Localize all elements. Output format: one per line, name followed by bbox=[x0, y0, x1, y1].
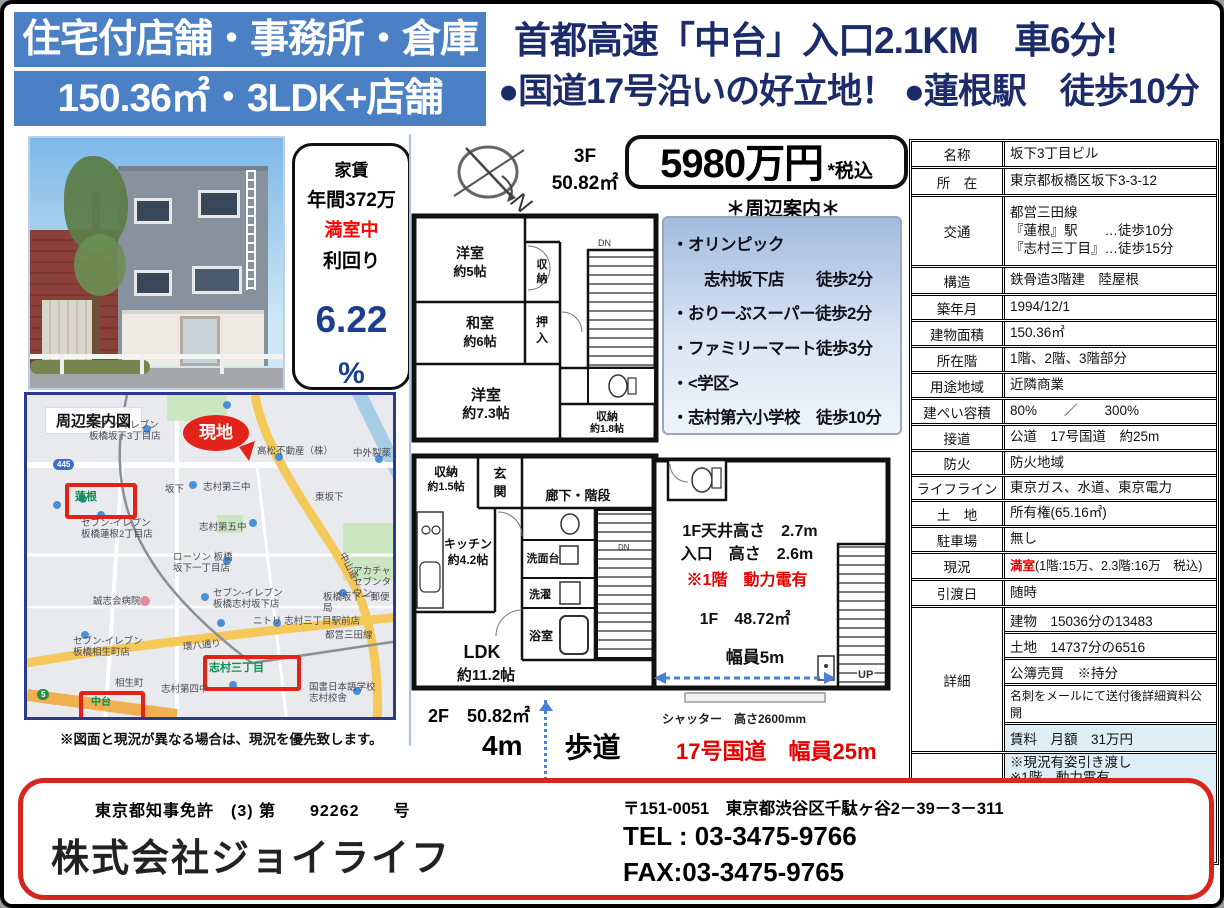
table-row: ライフライン東京ガス、水道、東京電力 bbox=[912, 477, 1216, 502]
window-2f-right bbox=[192, 266, 242, 294]
toilet-icon bbox=[609, 375, 627, 397]
map-label: 高松不動産（株） bbox=[257, 447, 333, 458]
flyer-page: 住宅付店舗・事務所・倉庫 150.36㎡・3LDK+店舗 首都高速「中台」入口2… bbox=[0, 0, 1224, 908]
kitchen-counter-icon bbox=[417, 512, 443, 608]
svg-text:DN: DN bbox=[618, 543, 630, 552]
table-row: 築年月1994/12/1 bbox=[912, 296, 1216, 322]
svg-text:約4.2帖: 約4.2帖 bbox=[448, 552, 489, 567]
svg-text:収納: 収納 bbox=[596, 409, 618, 423]
status-detail: (1階:15万、2.3階:16万 税込) bbox=[1035, 558, 1202, 575]
yield-value: 6.22 bbox=[295, 299, 408, 341]
price-amount: 5980万円 bbox=[660, 142, 823, 186]
hospital-icon bbox=[140, 596, 150, 606]
map-label: セブン-イレブン 板橋坂下3丁目店 bbox=[89, 421, 161, 443]
rent-annual: 年間372万 bbox=[295, 185, 408, 212]
property-table: 名称坂下3丁目ビル 所 在東京都板橋区坂下3-3-12 交通都営三田線 『蓮根』… bbox=[909, 139, 1219, 865]
table-row: 接道公道 17号国道 約25m bbox=[912, 426, 1216, 452]
table-row: 引渡日随時 bbox=[912, 581, 1216, 608]
svg-text:約5帖: 約5帖 bbox=[453, 264, 486, 279]
svg-text:収納: 収納 bbox=[434, 464, 458, 479]
svg-text:洗面台: 洗面台 bbox=[527, 551, 560, 565]
table-row: 構造鉄骨造3階建 陸屋根 bbox=[912, 268, 1216, 296]
svg-text:納: 納 bbox=[537, 271, 548, 285]
floorplan-2f: DN 収納 約1.5帖 玄 関 廊下・階段 キッチン 約4.2帖 洗面台 洗濯 … bbox=[410, 450, 660, 700]
sidewalk-note: 4m 歩道 bbox=[482, 726, 620, 766]
guardrail-post bbox=[220, 354, 224, 374]
svg-text:約1.8帖: 約1.8帖 bbox=[590, 422, 624, 435]
site-marker-label: 現地 bbox=[199, 423, 233, 442]
floor3-title: 3F 50.82㎡ bbox=[540, 146, 630, 195]
company-name: 株式会社ジョイライフ bbox=[51, 827, 451, 882]
svg-text:押: 押 bbox=[536, 314, 548, 329]
shutter-note: シャッター 高さ2600mm bbox=[662, 710, 806, 727]
sidewalk-arrow-icon bbox=[544, 700, 547, 786]
svg-text:幅員5m: 幅員5m bbox=[726, 647, 785, 667]
svg-text:洗濯: 洗濯 bbox=[529, 587, 551, 601]
table-row: 駐車場無し bbox=[912, 528, 1216, 554]
window-2f-left bbox=[134, 270, 172, 296]
floor2-label: 2F 50.82㎡ bbox=[428, 702, 530, 728]
site-marker: 現地 bbox=[183, 415, 249, 451]
toilet-icon bbox=[561, 514, 579, 534]
bathtub-icon bbox=[560, 616, 588, 654]
svg-text:入: 入 bbox=[536, 331, 548, 345]
table-row-status: 現況 満室(1階:15万、2.3階:16万 税込) bbox=[912, 554, 1216, 581]
price-tax-note: *税込 bbox=[828, 161, 873, 182]
washbasin-icon bbox=[560, 546, 578, 564]
guardrail-post bbox=[140, 354, 144, 374]
map-label: 国書日本語学校 志村校舎 bbox=[309, 683, 376, 705]
svg-text:玄: 玄 bbox=[493, 466, 506, 481]
sidewalk-hodo: 歩道 bbox=[564, 726, 620, 766]
guardrail bbox=[30, 354, 285, 359]
shutter-icon bbox=[685, 693, 825, 702]
occupancy-status: 満室中 bbox=[295, 216, 408, 242]
nearby-item: ・<学区> bbox=[672, 367, 894, 402]
svg-text:約7.3帖: 約7.3帖 bbox=[462, 405, 509, 421]
property-photo bbox=[28, 136, 285, 390]
svg-text:DN: DN bbox=[598, 238, 611, 248]
map-label: アカチャ セブンタウン bbox=[353, 567, 393, 600]
sidewalk-arrow-up bbox=[539, 694, 553, 711]
map-label: 坂下 bbox=[165, 485, 184, 496]
company-box: 東京都知事免許 (3) 第 92262 号 株式会社ジョイライフ 〒151-00… bbox=[18, 778, 1214, 900]
nearby-item: ・おりーぶスーパー徒歩2分 bbox=[672, 297, 894, 332]
svg-text:キッチン: キッチン bbox=[444, 537, 492, 551]
stairs-icon bbox=[597, 510, 654, 658]
svg-text:浴室: 浴室 bbox=[529, 628, 553, 643]
floorplan-1f: 1F天井高さ 2.7m 入口 高さ 2.6m ※1階 動力電有 1F 48.72… bbox=[650, 456, 895, 706]
map-label-station: 志村三丁目 bbox=[209, 662, 264, 675]
table-row: 防火防火地域 bbox=[912, 452, 1216, 477]
headline-line2: ●国道17号沿いの好立地！ ●蓮根駅 徒歩10分 bbox=[498, 68, 1220, 115]
company-fax: FAX:03-3475-9765 bbox=[623, 857, 844, 888]
table-row: 用途地域近隣商業 bbox=[912, 374, 1216, 400]
guardrail-post bbox=[60, 354, 64, 374]
svg-text:和室: 和室 bbox=[466, 315, 494, 331]
nearby-item: ・志村第六小学校 徒歩10分 bbox=[672, 401, 894, 436]
nearby-item: ・オリンピック bbox=[672, 228, 894, 263]
table-row: 所 在東京都板橋区坂下3-3-12 bbox=[912, 169, 1216, 197]
license-number: 東京都知事免許 (3) 第 92262 号 bbox=[95, 797, 411, 821]
svg-text:廊下・階段: 廊下・階段 bbox=[545, 488, 610, 503]
rent-yield-box: 家賃 年間372万 満室中 利回り 6.22 % bbox=[292, 143, 411, 390]
table-row: 建物面積150.36㎡ bbox=[912, 322, 1216, 348]
map-label: 都営三田線 bbox=[325, 631, 373, 642]
svg-text:UP: UP bbox=[858, 669, 873, 681]
nearby-item: 志村坂下店 徒歩2分 bbox=[672, 263, 894, 298]
map-label: ローソン 板橋 坂下一丁目店 bbox=[173, 553, 233, 575]
map-label: 東坂下 bbox=[315, 493, 344, 504]
floorplan-3f: DN 洋室 約5帖 収 納 和室 約6帖 押 入 洋室 約7.3帖 収納 約1.… bbox=[410, 202, 660, 447]
road-note: 17号国道 幅員25m bbox=[676, 734, 877, 766]
svg-text:※1階 動力電有: ※1階 動力電有 bbox=[687, 570, 808, 589]
map-label: 志村第五中 bbox=[199, 523, 247, 534]
svg-text:LDK: LDK bbox=[464, 642, 501, 662]
yield-label: 利回り bbox=[295, 246, 408, 273]
map-label: 相生町 bbox=[115, 679, 144, 690]
table-row: 名称坂下3丁目ビル bbox=[912, 142, 1216, 169]
svg-text:収: 収 bbox=[537, 258, 549, 271]
svg-text:洋室: 洋室 bbox=[471, 386, 501, 404]
svg-text:関: 関 bbox=[493, 484, 506, 499]
table-row: 建ぺい容積80% ／ 300% bbox=[912, 400, 1216, 426]
floor3-area: 50.82㎡ bbox=[540, 168, 630, 195]
roof-ladder-icon bbox=[246, 170, 256, 290]
floor3-floor: 3F bbox=[540, 146, 630, 168]
property-type-banner: 住宅付店舗・事務所・倉庫 150.36㎡・3LDK+店舗 bbox=[14, 12, 486, 126]
svg-text:1F 48.72㎡: 1F 48.72㎡ bbox=[700, 609, 791, 628]
banner-line1: 住宅付店舗・事務所・倉庫 bbox=[14, 12, 486, 67]
map-disclaimer: ※図面と現況が異なる場合は、現況を優先致します。 bbox=[60, 728, 383, 748]
station-highlight-nakadai bbox=[79, 691, 145, 720]
stairs-icon bbox=[588, 250, 655, 368]
toilet-icon bbox=[692, 468, 712, 492]
map-label: ニトリ 志村三丁目駅前店 bbox=[253, 617, 360, 628]
map-label: 誠志会病院 bbox=[93, 597, 141, 608]
bushes bbox=[30, 360, 150, 374]
window-3f-right bbox=[198, 190, 240, 218]
map-label: 志村第三中 bbox=[203, 483, 251, 494]
table-row-detail: 詳細 建物 15036分の13483 土地 14737分の6516 公簿売買 ※… bbox=[912, 608, 1216, 754]
status-occupied: 満室 bbox=[1010, 558, 1035, 575]
stairs-icon bbox=[838, 544, 886, 688]
svg-text:約11.2帖: 約11.2帖 bbox=[457, 666, 515, 684]
company-address: 〒151-0051 東京都渋谷区千駄ヶ谷2－39－3－311 bbox=[623, 795, 1004, 819]
map-label-station: 中台 bbox=[91, 697, 111, 709]
banner-line2: 150.36㎡・3LDK+店舗 bbox=[14, 71, 486, 126]
route-shield: 445 bbox=[53, 459, 74, 470]
svg-text:入口 高さ 2.6m: 入口 高さ 2.6m bbox=[681, 544, 813, 563]
washer-icon bbox=[560, 582, 580, 604]
map-label: セブン-イレブン 板橋相生町店 bbox=[73, 637, 143, 659]
price-box: 5980万円 *税込 bbox=[625, 135, 908, 189]
svg-text:約6帖: 約6帖 bbox=[463, 334, 496, 349]
table-row: 交通都営三田線 『蓮根』駅 …徒歩10分 『志村三丁目』…徒歩15分 bbox=[912, 197, 1216, 268]
svg-text:洋室: 洋室 bbox=[456, 245, 484, 261]
headline-line1: 首都高速「中台」入口2.1KM 車6分! bbox=[498, 14, 1220, 68]
svg-text:約1.5帖: 約1.5帖 bbox=[427, 479, 464, 493]
map-label: 中外製薬 bbox=[353, 449, 391, 460]
nearby-item: ・ファミリーマート徒歩3分 bbox=[672, 332, 894, 367]
svg-text:1F天井高さ 2.7m: 1F天井高さ 2.7m bbox=[682, 521, 817, 540]
tree-foliage bbox=[74, 234, 126, 296]
sidewalk-4m: 4m bbox=[482, 730, 522, 762]
headline: 首都高速「中台」入口2.1KM 車6分! ●国道17号沿いの好立地！ ●蓮根駅 … bbox=[498, 14, 1220, 115]
rent-title: 家賃 bbox=[295, 156, 408, 181]
map-label: セブン-イレブン 板橋蓮根2丁目店 bbox=[81, 519, 153, 541]
company-tel: TEL : 03-3475-9766 bbox=[623, 821, 857, 852]
map-label: 志村第四中 bbox=[161, 685, 209, 696]
table-row: 土 地所有権(65.16㎡) bbox=[912, 502, 1216, 528]
table-row: 所在階1階、2階、3階部分 bbox=[912, 348, 1216, 374]
yield-unit: % bbox=[295, 357, 408, 391]
map-label: セブン-イレブン 板橋志村坂下店 bbox=[213, 589, 283, 611]
area-map: 周辺案内図 現地 445 5 セブン-イレブン 板橋坂下3丁目店 高松不動産（株… bbox=[24, 392, 396, 720]
map-label-station: 蓮根 bbox=[75, 491, 97, 504]
nearby-box: ・オリンピック 志村坂下店 徒歩2分 ・おりーぶスーパー徒歩2分 ・ファミリーマ… bbox=[662, 216, 902, 435]
window-3f-left bbox=[134, 198, 172, 224]
